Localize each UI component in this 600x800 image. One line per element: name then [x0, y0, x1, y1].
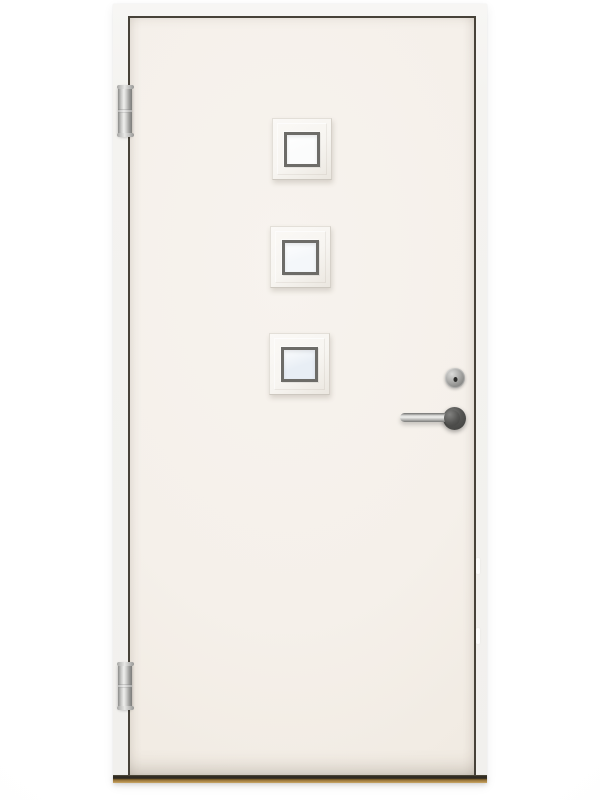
window-glass: [285, 243, 316, 272]
threshold-sill: [113, 775, 487, 783]
door-unit: [113, 4, 487, 783]
strike-plate-upper: [476, 558, 480, 574]
lock-cylinder-core: [450, 373, 461, 384]
glazing-frame: [284, 132, 320, 167]
product-photo-stage: [0, 0, 600, 800]
window-glass: [287, 135, 317, 164]
strike-plate-lower: [476, 628, 480, 644]
glazing-frame: [281, 347, 318, 382]
hinge-bottom: [118, 663, 132, 709]
window-bottom: [269, 333, 330, 395]
door-handle-lever: [400, 413, 457, 422]
glazing-frame: [282, 240, 319, 275]
keyhole: [453, 377, 457, 382]
hinge-seam: [118, 684, 132, 688]
hinge-seam: [118, 109, 132, 113]
hinge-top: [118, 86, 132, 136]
window-glass: [284, 350, 315, 379]
window-middle: [270, 226, 331, 288]
window-top: [272, 118, 332, 180]
lock-cylinder: [445, 368, 465, 388]
